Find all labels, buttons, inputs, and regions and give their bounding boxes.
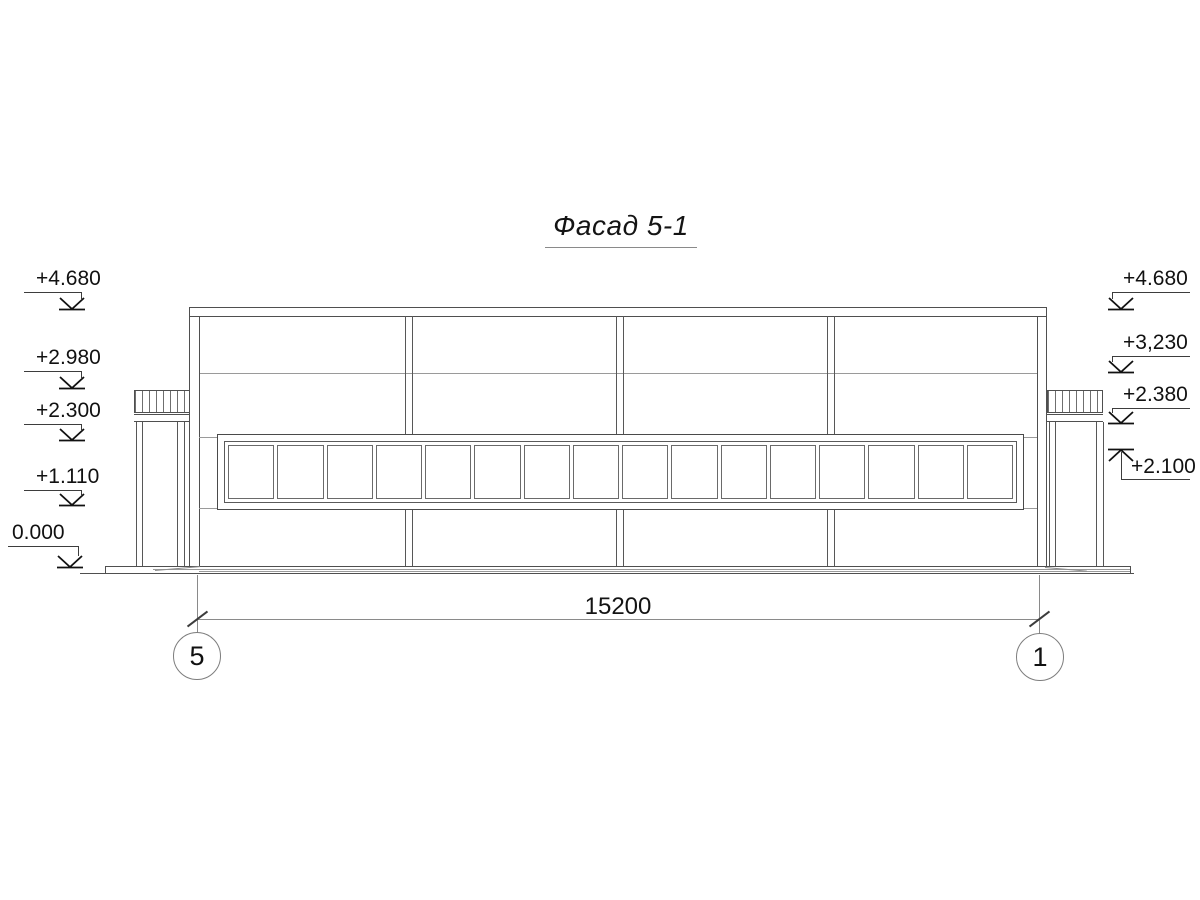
window-pane [474,445,520,499]
elevation-leader-elbow [1121,452,1122,479]
elevation-leader-line [24,490,82,491]
left-annex-cap-band [134,414,190,422]
elevation-arrow-down-icon [1108,297,1134,311]
right-annex-column [1049,422,1056,567]
ground-line [80,573,1134,574]
right-wall-inner-line [1037,316,1038,566]
ribbon-window-band [217,434,1024,510]
window-pane [277,445,323,499]
window-pane [770,445,816,499]
facade-drawing-canvas: Фасад 5-1 +4.680 +2.980 +2.300 [0,0,1200,900]
elevation-arrow-down-icon [59,428,85,442]
window-pane [228,445,274,499]
plinth-line [105,566,1130,567]
elevation-label: +4.680 [1123,268,1188,290]
elevation-arrow-down-icon [59,297,85,311]
left-annex-column [177,422,185,567]
elevation-label: +1.110 [36,466,99,488]
axis-bubble-5: 5 [173,632,221,680]
window-pane [967,445,1013,499]
elevation-arrow-down-icon [59,493,85,507]
drawing-title: Фасад 5-1 [545,210,697,248]
window-pane [671,445,717,499]
elevation-label: +2.380 [1123,384,1188,406]
right-annex-cap-band [1047,414,1103,422]
elevation-leader-line [1121,479,1190,480]
dimension-value: 15200 [558,593,678,621]
right-annex-hatched-cap [1047,390,1103,413]
axis-extension-line [197,575,198,633]
window-pane [721,445,767,499]
plinth-line [153,569,1130,570]
axis-number: 5 [189,641,204,672]
window-pane [376,445,422,499]
elevation-leader-line [24,371,82,372]
elevation-label: +2.980 [36,347,101,369]
elevation-leader-line [1112,356,1190,357]
window-pane [622,445,668,499]
plinth-line [199,571,1130,572]
plinth-right-step [1130,566,1131,574]
plinth-left-step [105,566,106,574]
elevation-leader-line [24,424,82,425]
window-pane [918,445,964,499]
window-sill-connector [199,437,217,438]
left-annex-hatched-cap [134,390,190,413]
elevation-leader-line [1112,292,1190,293]
window-pane [425,445,471,499]
elevation-leader-line [24,292,82,293]
window-pane [573,445,619,499]
elevation-label: +2.300 [36,400,101,422]
elevation-leader-line [8,546,78,547]
window-pane [819,445,865,499]
right-annex-column [1096,422,1104,567]
window-pane [327,445,373,499]
left-wall-inner-line [199,316,200,566]
window-sill-connector [199,508,217,509]
axis-extension-line [1039,575,1040,634]
window-pane [524,445,570,499]
ribbon-window-inner-frame [224,441,1017,503]
window-pane [868,445,914,499]
axis-number: 1 [1032,642,1047,673]
window-sill-connector [1023,508,1037,509]
elevation-leader-line [1112,408,1190,409]
elevation-label: +2.100 [1131,456,1196,478]
elevation-label: +3,230 [1123,332,1188,354]
elevation-arrow-down-icon [1108,360,1134,374]
window-sill-connector [1023,437,1037,438]
axis-bubble-1: 1 [1016,633,1064,681]
elevation-label: 0.000 [12,522,65,544]
elevation-arrow-down-icon [1108,411,1134,425]
elevation-arrow-down-icon [57,555,83,569]
elevation-arrow-down-icon [59,376,85,390]
elevation-label: +4.680 [36,268,101,290]
left-annex-column [136,422,143,567]
